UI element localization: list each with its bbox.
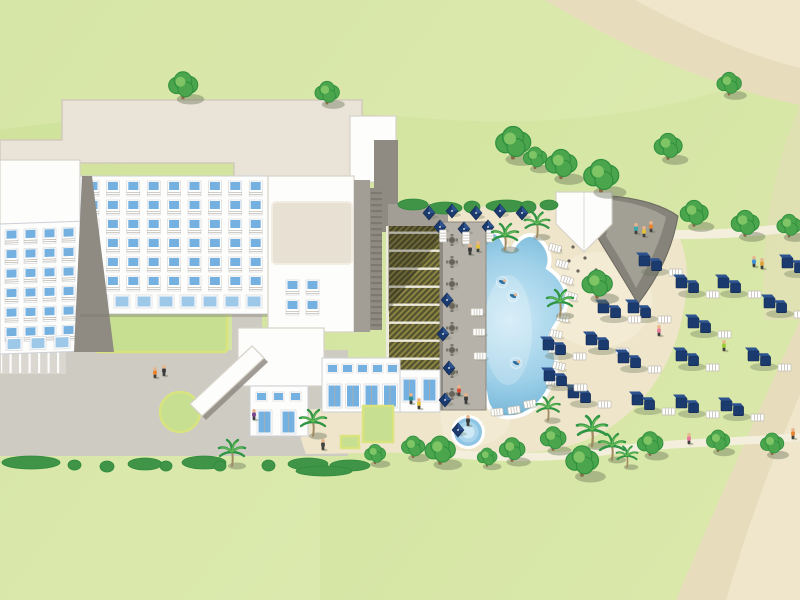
courtyard-lawn <box>95 312 227 352</box>
window <box>249 276 262 291</box>
window <box>229 219 242 234</box>
window <box>43 306 56 321</box>
window <box>147 181 160 196</box>
window <box>229 181 242 196</box>
window <box>208 276 221 291</box>
left-wing-roof <box>0 160 80 224</box>
window <box>229 257 242 272</box>
window <box>249 257 262 272</box>
window <box>249 181 262 196</box>
window <box>24 248 37 263</box>
window <box>306 280 319 295</box>
window <box>106 181 119 196</box>
window <box>147 257 160 272</box>
window <box>286 300 299 315</box>
door <box>422 378 437 402</box>
window <box>62 286 75 301</box>
lobby-building <box>322 358 400 412</box>
hedge-bush <box>160 461 172 471</box>
window <box>127 219 140 234</box>
window <box>147 238 160 253</box>
hedge-bush <box>398 199 428 210</box>
swindow <box>273 392 284 401</box>
window <box>249 200 262 215</box>
window <box>168 219 181 234</box>
window <box>208 257 221 272</box>
window <box>106 219 119 234</box>
roundabout <box>160 392 200 432</box>
terrace-lawn-patch <box>341 436 359 448</box>
window <box>106 257 119 272</box>
door <box>346 384 361 408</box>
window <box>106 276 119 291</box>
window <box>5 229 18 244</box>
terrace-lawn-patch <box>363 406 393 442</box>
door <box>364 384 379 408</box>
window <box>147 276 160 291</box>
window <box>147 219 160 234</box>
window <box>306 300 319 315</box>
window <box>106 200 119 215</box>
swindow <box>327 364 338 373</box>
window <box>188 219 201 234</box>
window <box>127 200 140 215</box>
door <box>257 410 272 434</box>
window <box>229 238 242 253</box>
swindow <box>256 392 267 401</box>
door <box>327 384 342 408</box>
window <box>24 268 37 283</box>
window <box>127 276 140 291</box>
window <box>62 227 75 242</box>
window <box>168 257 181 272</box>
swindow <box>387 364 398 373</box>
window <box>62 247 75 262</box>
gwindow <box>246 295 262 308</box>
hedge-bush <box>214 461 226 471</box>
gwindow <box>136 295 152 308</box>
hedge-bush <box>2 456 60 469</box>
window <box>5 307 18 322</box>
window <box>24 307 37 322</box>
window <box>249 219 262 234</box>
window <box>208 219 221 234</box>
window <box>208 200 221 215</box>
window <box>168 181 181 196</box>
window <box>229 276 242 291</box>
window <box>5 288 18 303</box>
left-wing <box>0 221 80 354</box>
window <box>127 257 140 272</box>
swindow <box>357 364 368 373</box>
gwindow <box>224 295 240 308</box>
bar-seat <box>571 245 574 248</box>
window <box>127 238 140 253</box>
window <box>43 267 56 282</box>
gwindow <box>180 295 196 308</box>
door <box>383 384 398 408</box>
window <box>168 238 181 253</box>
hedge-bush <box>262 460 275 471</box>
bar-seat <box>576 269 579 272</box>
gwindow <box>158 295 174 308</box>
gwindow <box>6 337 22 351</box>
restaurant-building <box>250 386 308 436</box>
window <box>168 276 181 291</box>
gwindow <box>114 295 130 308</box>
resort-map-svg <box>0 0 800 600</box>
window <box>5 268 18 283</box>
window <box>208 238 221 253</box>
hedge-bush <box>128 458 162 470</box>
swindow <box>342 364 353 373</box>
window <box>188 257 201 272</box>
window <box>249 238 262 253</box>
window <box>188 181 201 196</box>
window <box>127 181 140 196</box>
swindow <box>290 392 301 401</box>
hedge-bush <box>68 460 81 470</box>
center-building <box>268 176 382 332</box>
window <box>106 238 119 253</box>
stair-wall <box>354 180 370 332</box>
window <box>286 280 299 295</box>
gwindow <box>54 336 70 350</box>
window <box>168 200 181 215</box>
window <box>62 305 75 320</box>
hedge-bush <box>540 200 558 210</box>
window <box>188 276 201 291</box>
hedge-bush <box>296 466 352 476</box>
window <box>43 248 56 263</box>
resort-map <box>0 0 800 600</box>
door <box>281 410 296 434</box>
bar-seat <box>583 256 586 259</box>
gwindow <box>202 295 218 308</box>
gwindow <box>30 336 46 350</box>
window <box>43 228 56 243</box>
window <box>24 229 37 244</box>
window <box>208 181 221 196</box>
window <box>188 200 201 215</box>
window <box>43 287 56 302</box>
window <box>24 287 37 302</box>
window <box>188 238 201 253</box>
window <box>5 249 18 264</box>
hedge-bush <box>100 461 114 472</box>
window <box>229 200 242 215</box>
window <box>62 266 75 281</box>
window <box>147 200 160 215</box>
swindow <box>372 364 383 373</box>
skylight <box>272 202 352 264</box>
